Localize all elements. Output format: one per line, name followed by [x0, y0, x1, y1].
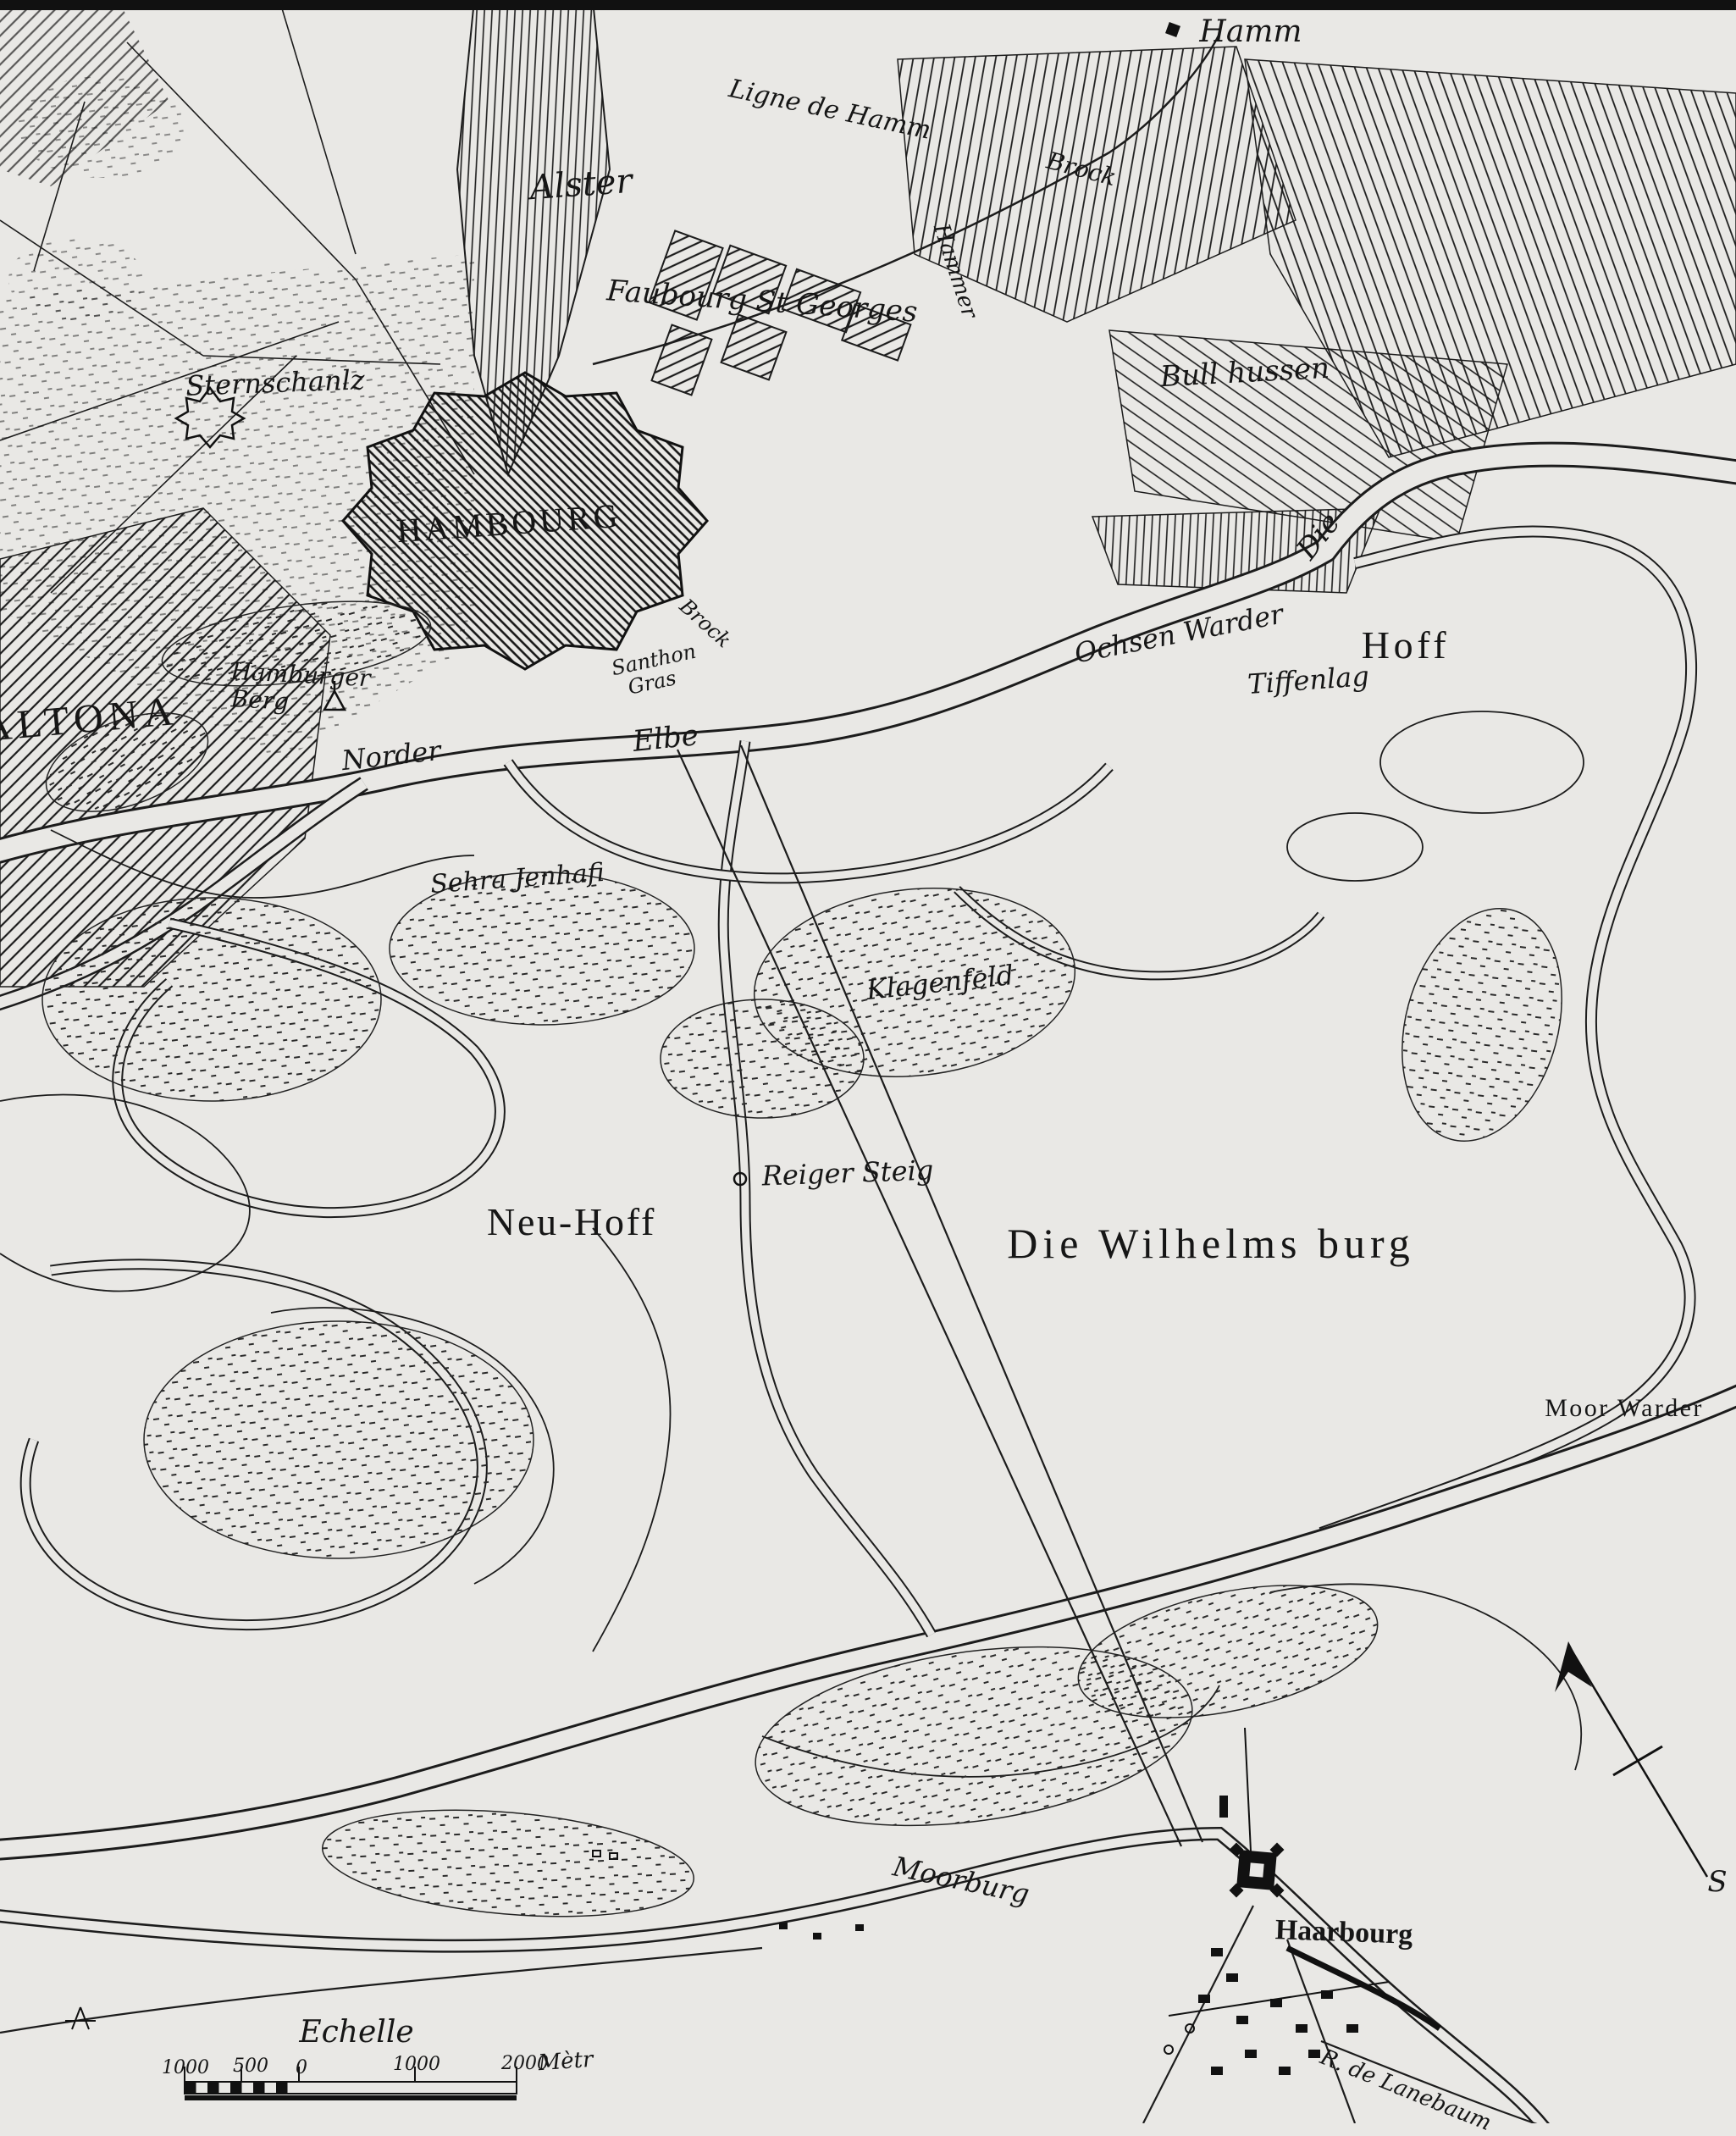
map-label-faubourg-st-georges: Faubourg St Georges — [606, 276, 919, 327]
map-label-scale-500: 500 — [233, 2057, 268, 2076]
map-label-altona: ALTONA — [0, 691, 180, 749]
map-label-die: Die — [1292, 508, 1346, 565]
map-label-south-letter: S — [1707, 1868, 1727, 1896]
map-label-echelle: Echelle — [299, 2017, 413, 2048]
map-labels: HammLigne de HammBrockAlsterFaubourg St … — [0, 0, 1736, 2123]
map-label-bull-hussen: Bull hussen — [1159, 354, 1330, 391]
map-label-ligne-de-hamm: Ligne de Hamm — [727, 76, 933, 144]
map-label-moor-warder: Moor Warder — [1545, 1396, 1704, 1421]
map-label-hoff: Hoff — [1362, 626, 1450, 665]
map-label-klagenfeld: Klagenfeld — [865, 961, 1015, 1004]
map-label-scale-1000-left: 1000 — [162, 2059, 209, 2078]
map-label-scale-0: 0 — [296, 2059, 307, 2078]
map-label-ochsen-warder: Ochsen Warder — [1072, 600, 1285, 667]
map-label-hambourg: HAMBOURG — [395, 499, 622, 548]
map-label-moorburg: Moorburg — [891, 1852, 1032, 1907]
map-label-neu-hoff: Neu-Hoff — [487, 1203, 656, 1242]
map-label-r-de-lanebaum: R. de Lanebaum — [1318, 2046, 1495, 2135]
map-label-sehra-jenhafi: Sehra Jenhafi — [429, 860, 605, 898]
map-label-sternschanlz: Sternschanlz — [185, 366, 365, 399]
map-label-tiffenlag: Tiffenlag — [1247, 662, 1369, 698]
map-label-haarbourg: Haarbourg — [1274, 1916, 1413, 1950]
map-label-scale-1000-right: 1000 — [393, 2056, 440, 2074]
map-label-elbe: Elbe — [632, 721, 700, 756]
map-label-berg: Berg — [230, 687, 290, 714]
map-label-alster: Alster — [528, 164, 633, 205]
map-label-reiger-steig: Reiger Steig — [761, 1156, 934, 1189]
map-label-die-wilhelms-burg: Die Wilhelms burg — [1007, 1222, 1414, 1264]
map-canvas: HammLigne de HammBrockAlsterFaubourg St … — [0, 0, 1736, 2123]
map-label-scale-unit: Mètr — [538, 2049, 594, 2074]
map-label-norder: Norder — [340, 737, 442, 774]
map-label-hammer: Hammer — [930, 221, 981, 321]
map-label-brock: Brock — [1044, 149, 1119, 191]
map-label-hamm: Hamm — [1199, 17, 1302, 47]
